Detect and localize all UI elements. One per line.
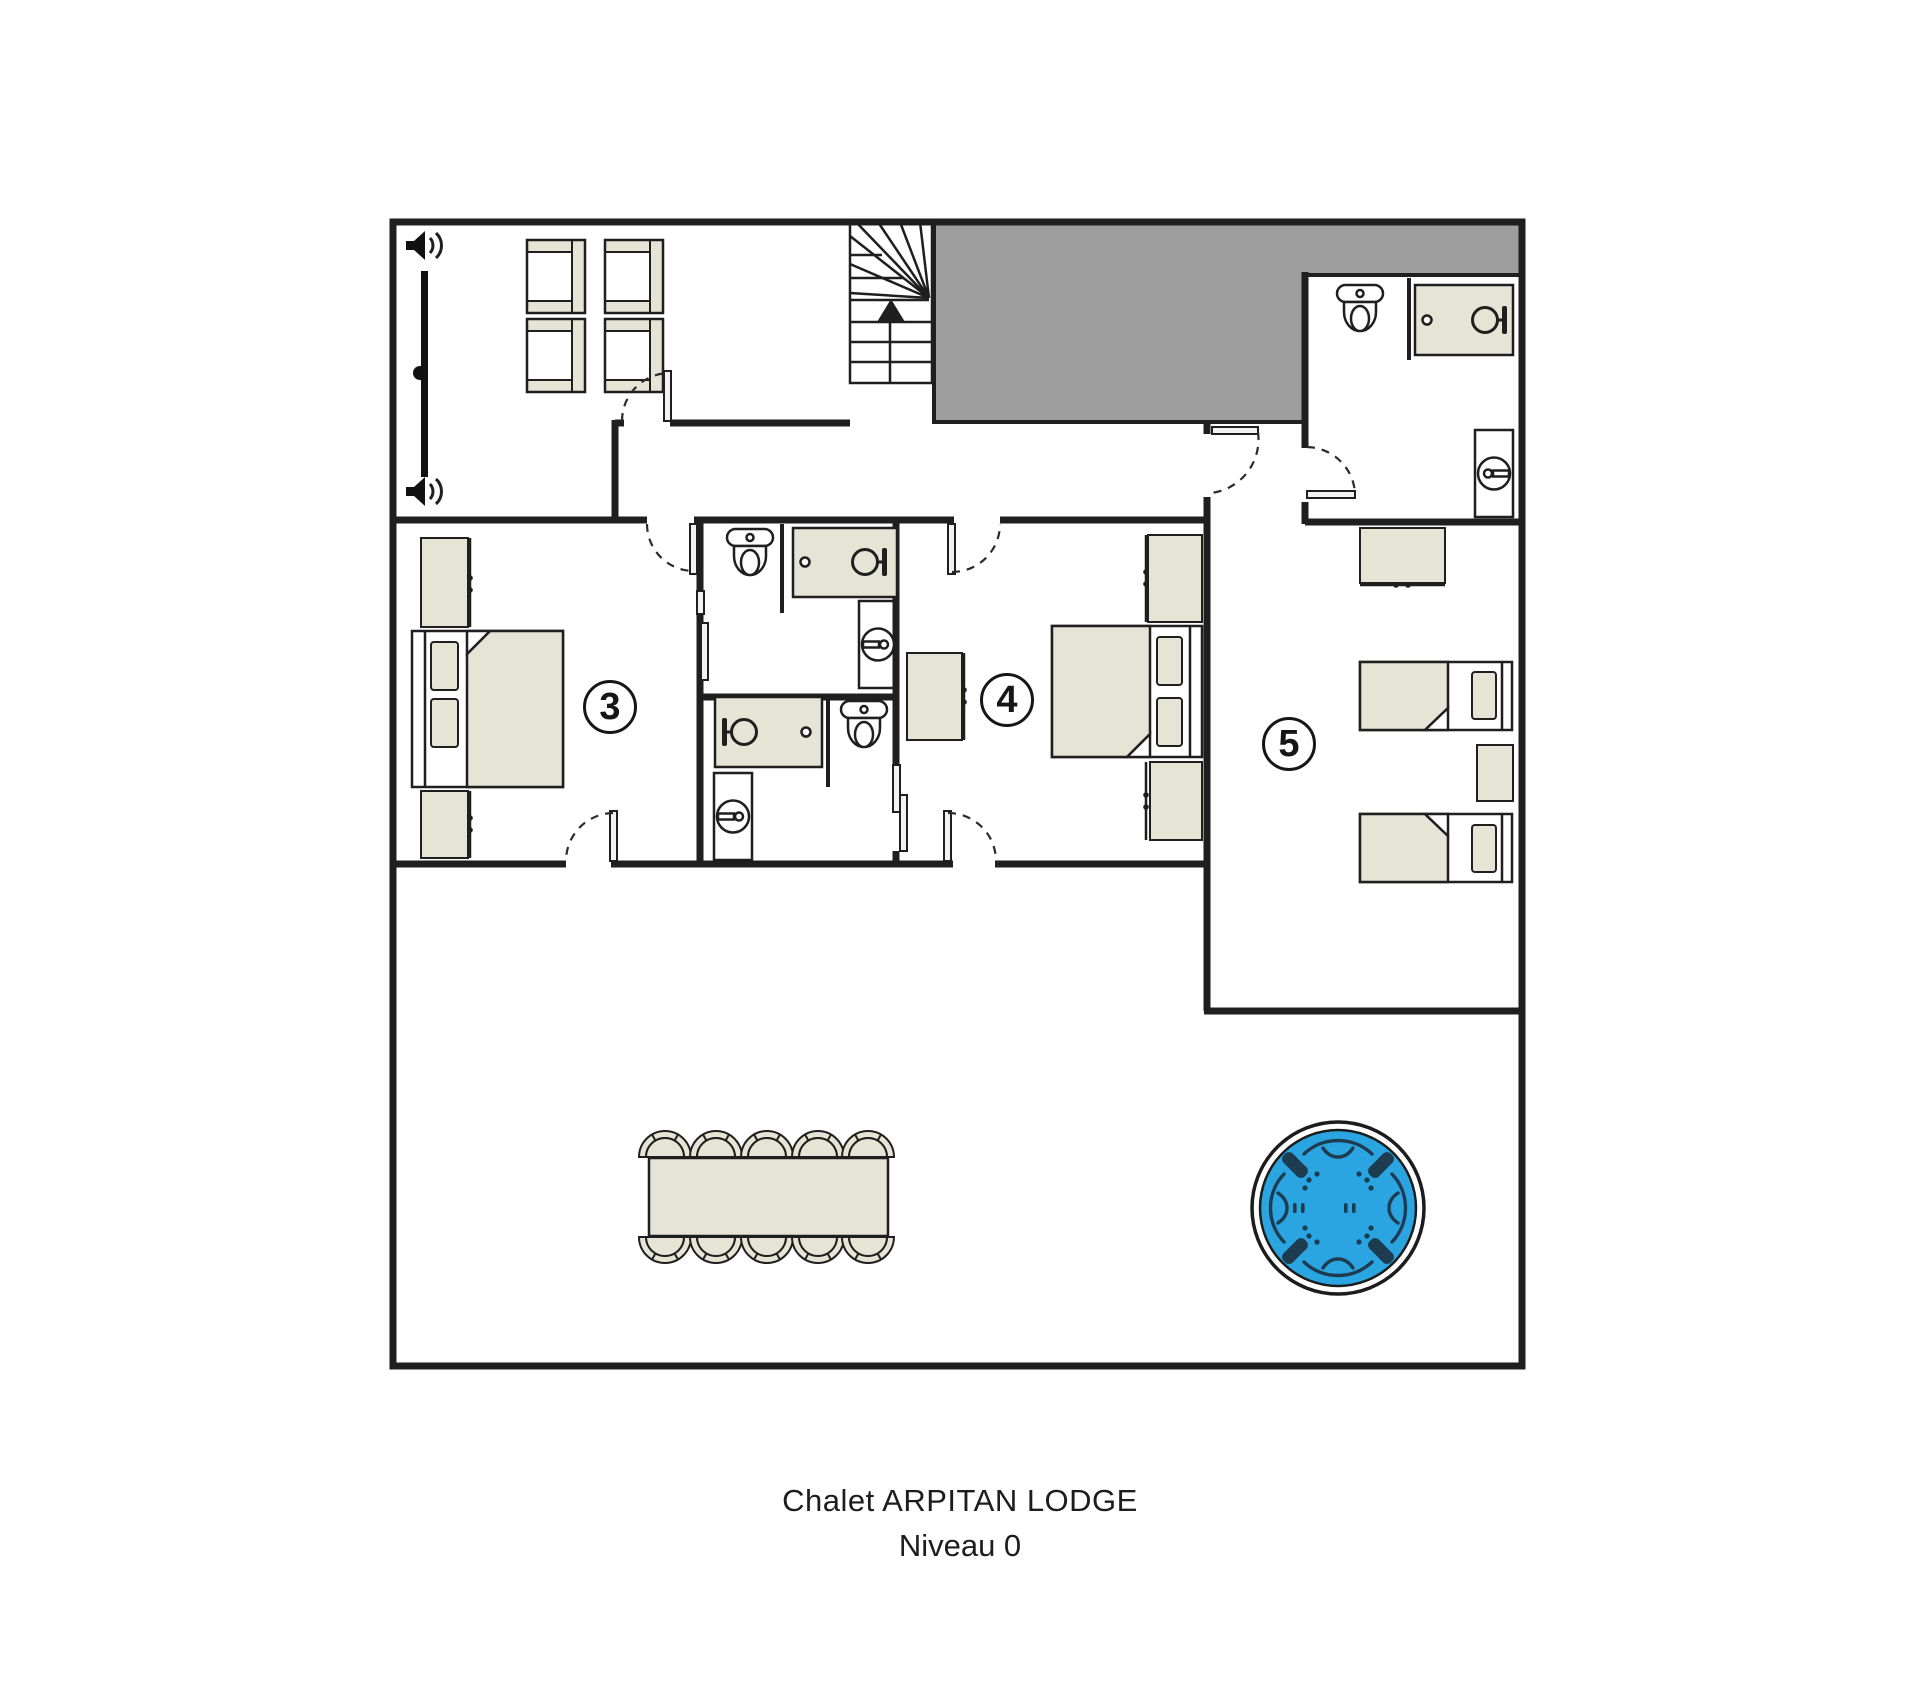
single-bed [1360,814,1512,882]
chalet-name: Chalet ARPITAN LODGE [0,1483,1920,1519]
wardrobe [1143,762,1202,840]
bathroom-b [714,697,887,860]
hot-tub [1252,1122,1424,1294]
double-bed [1052,626,1202,757]
floor-plan-drawing [0,0,1920,1694]
speaker-icon [406,477,441,506]
bathroom-top-right [1337,285,1513,517]
cinema-room [406,231,663,506]
nightstand [1477,745,1513,801]
room-number: 4 [996,679,1017,722]
room-number: 3 [599,686,620,729]
bathroom-topright-door [1307,447,1355,498]
room-label-4: 4 [980,673,1034,727]
bedroom-5 [1360,528,1513,882]
washbasin-icon [1475,430,1513,517]
bedroom4-living-door [944,811,996,861]
staircase [850,222,932,383]
cinema-seat [527,319,585,392]
shower [715,697,822,767]
room-label-3: 3 [583,680,637,734]
bathtub-icon [793,528,897,597]
wardrobe [421,538,473,627]
bedroom3-hall-door [647,524,697,574]
bedroom-4 [907,535,1202,840]
room-number: 5 [1278,723,1299,766]
wardrobe [1143,535,1202,622]
floor-level: Niveau 0 [0,1528,1920,1564]
toilet-icon [1337,285,1383,331]
wardrobe [421,791,473,858]
bedroom-3 [412,538,563,858]
washbasin-icon [859,601,897,688]
bedroom3-living-door [566,811,617,861]
cinema-seat [605,319,663,392]
wardrobe [907,653,967,740]
bathroom-a [727,528,897,688]
washbasin-icon [714,773,752,860]
cinema-seat [527,240,585,313]
bedroom5-entry-door [1211,427,1259,493]
toilet-icon [727,529,773,575]
cinema-screen [413,271,428,477]
shower [1415,285,1513,355]
cinema-seat [605,240,663,313]
wardrobe [1360,528,1445,588]
speaker-icon [406,231,441,260]
room-label-5: 5 [1262,717,1316,771]
floor-plan-page: 3 4 5 Chalet ARPITAN LODGE Niveau 0 [0,0,1920,1694]
toilet-icon [841,701,887,747]
single-bed [1360,662,1512,730]
doors [566,371,1355,861]
dining-area [639,1131,894,1263]
bedroom4-hall-door [948,524,1000,574]
double-bed [412,631,563,787]
plan-title: Chalet ARPITAN LODGE Niveau 0 [0,1483,1920,1564]
bathroom-b-sliding-door [893,765,907,851]
dining-table [649,1158,888,1236]
up-arrow-icon [877,299,905,322]
